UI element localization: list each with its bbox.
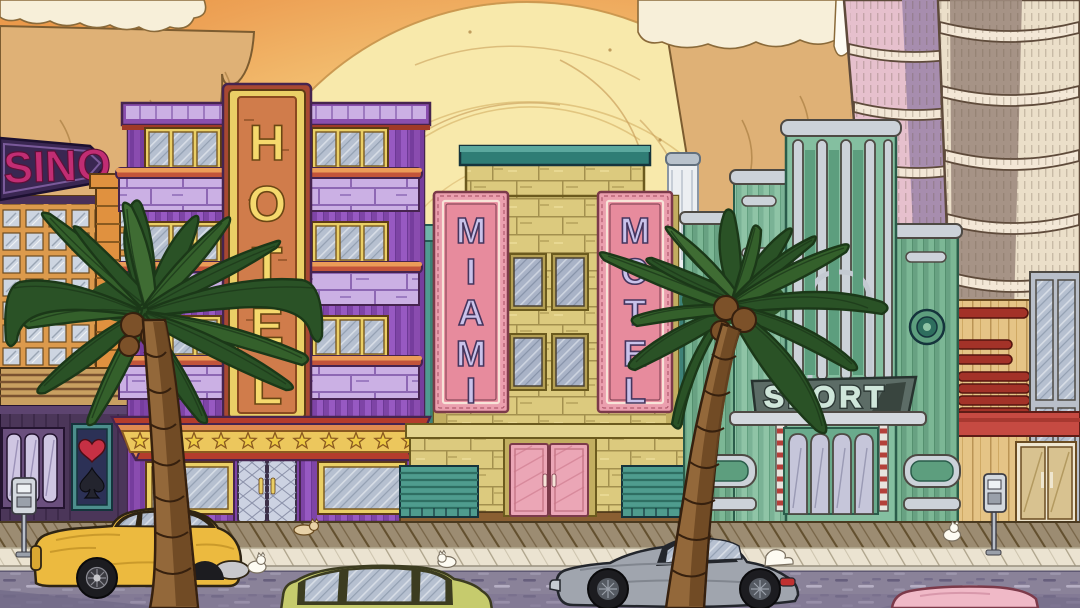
svg-text:M: M [456, 210, 486, 251]
svg-text:M: M [456, 333, 486, 374]
svg-text:H: H [249, 115, 285, 171]
svg-text:I: I [466, 370, 476, 411]
svg-text:L: L [624, 370, 646, 411]
svg-text:I: I [466, 251, 476, 292]
svg-text:A: A [458, 292, 484, 333]
svg-text:O: O [248, 176, 287, 232]
svg-text:T: T [624, 292, 646, 333]
svg-text:M: M [620, 210, 650, 251]
